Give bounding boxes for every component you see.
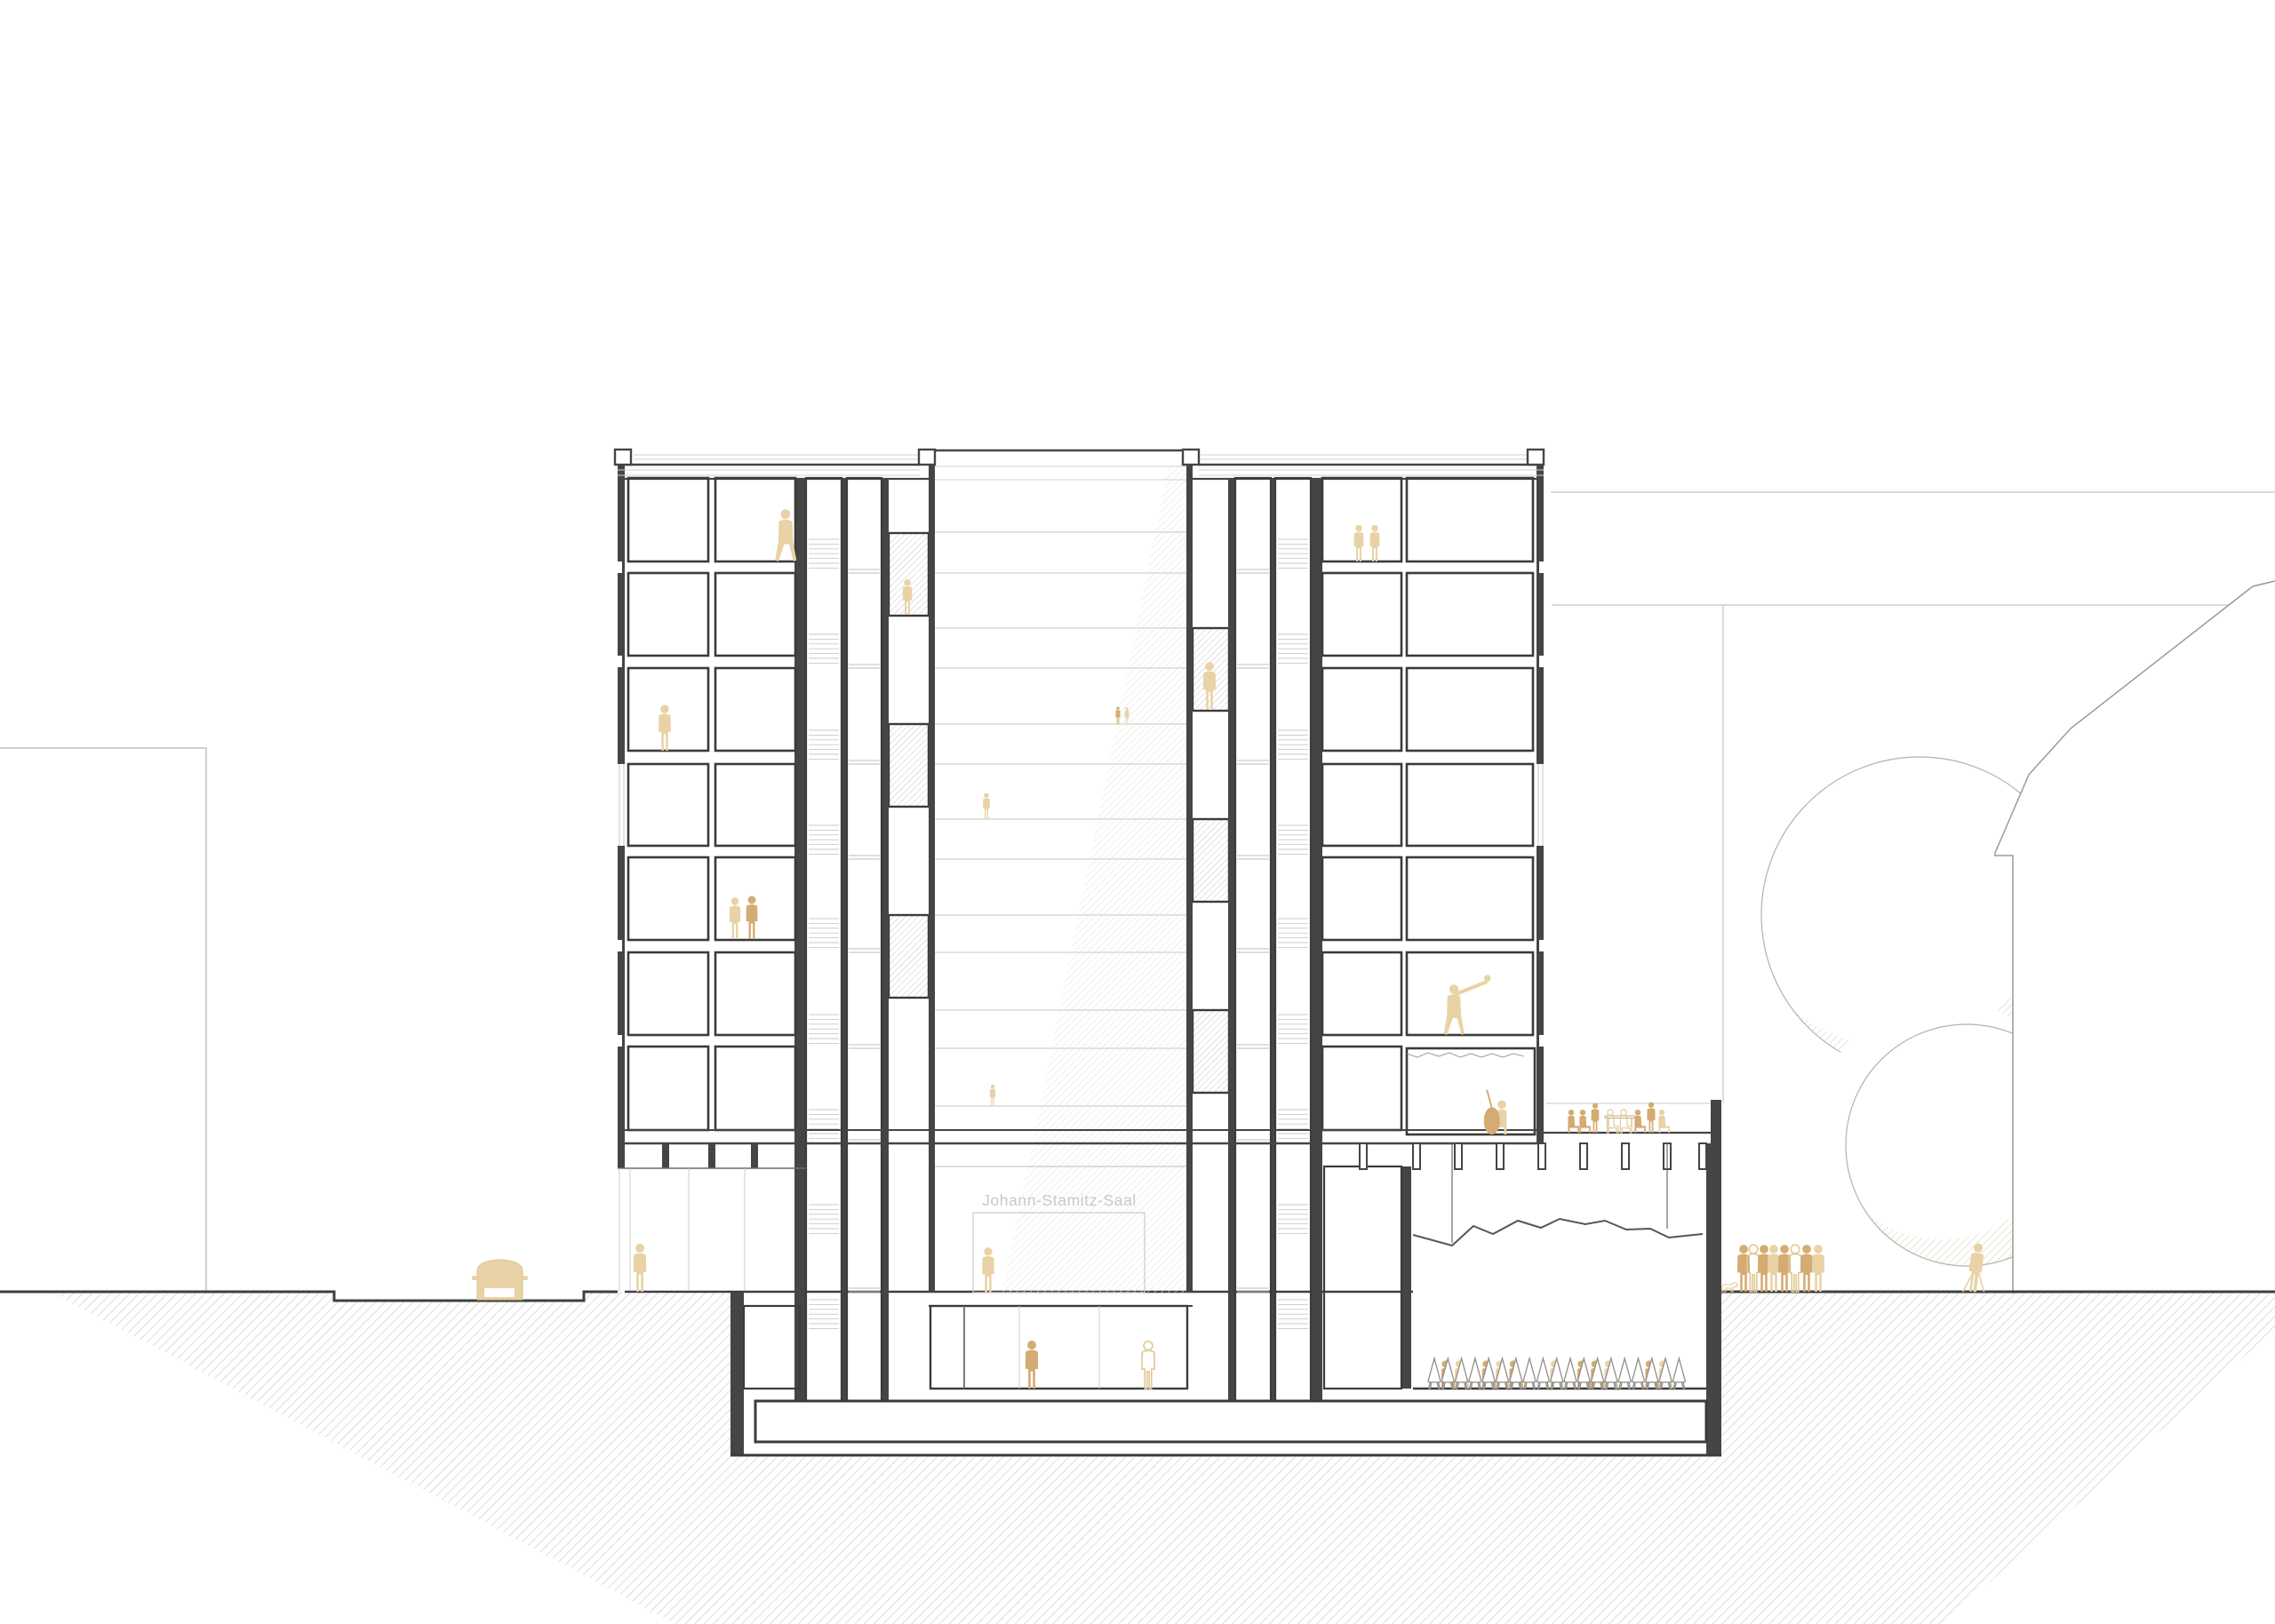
room	[715, 764, 795, 846]
acoustic-ceiling-zigzag	[1413, 1219, 1703, 1246]
ceiling-baffle	[1622, 1143, 1629, 1169]
ceiling-baffle	[1580, 1143, 1587, 1169]
room	[1322, 573, 1401, 656]
audience-chair	[1469, 1358, 1481, 1389]
landing-box	[1193, 1010, 1229, 1093]
ceiling-baffle	[1538, 1143, 1545, 1169]
person-upper-room-left-wing	[775, 509, 796, 561]
ceiling-baffle	[1455, 1143, 1462, 1169]
room	[628, 764, 708, 846]
terrace-person	[1634, 1110, 1646, 1133]
room	[628, 478, 708, 561]
landing-box	[889, 915, 929, 998]
colonnade-piers	[618, 1143, 758, 1168]
street-person	[1800, 1245, 1813, 1292]
terrace-person	[1647, 1103, 1655, 1133]
glazed-band-mullions	[619, 764, 1543, 846]
person-basement	[1026, 1341, 1038, 1389]
audience-chair	[1618, 1358, 1631, 1389]
terrace-person	[1620, 1110, 1632, 1133]
audience-chair	[1673, 1358, 1686, 1389]
room	[1322, 668, 1401, 751]
room	[628, 1047, 708, 1130]
car	[472, 1260, 528, 1300]
room	[628, 857, 708, 940]
person-room-left-wing	[730, 897, 740, 939]
room	[715, 573, 795, 656]
left-background-building	[0, 748, 206, 1292]
person-cellist	[1484, 1090, 1507, 1134]
room	[1407, 857, 1533, 940]
wall	[1311, 478, 1322, 1401]
room	[628, 952, 708, 1035]
room	[1407, 764, 1533, 846]
roof-parapets	[615, 450, 1544, 465]
person-basement	[1142, 1341, 1154, 1389]
audience-chair	[1632, 1358, 1645, 1389]
audience	[1428, 1358, 1685, 1389]
ceiling-baffles	[1413, 1143, 1706, 1169]
rehearsal-room-cello	[1407, 1048, 1535, 1134]
atrium-wall-left	[929, 465, 935, 1293]
concert-hall	[1324, 1053, 1711, 1389]
atrium-wall-right	[1186, 465, 1193, 1293]
rehearsal-room-trombone	[1407, 952, 1533, 1035]
person-room-left-wing	[659, 705, 671, 751]
audience-chair	[1428, 1358, 1441, 1389]
basement-wall-left	[730, 1293, 744, 1455]
wall	[1228, 478, 1235, 1401]
street-person	[1789, 1245, 1801, 1292]
right-background-building-fill	[1995, 581, 2275, 1294]
room	[1322, 857, 1401, 940]
ground	[0, 1292, 2275, 1624]
wall	[882, 478, 889, 1401]
curtain-wavy-line	[1407, 1053, 1524, 1057]
room	[715, 952, 795, 1035]
terrace-person	[1568, 1110, 1579, 1133]
street-person	[1768, 1245, 1780, 1292]
terrace-person	[1658, 1110, 1670, 1133]
light-beam-hatch	[1002, 466, 1186, 1293]
basement-corridor	[755, 1401, 1706, 1442]
room	[1322, 764, 1401, 846]
backstage-room	[1324, 1166, 1401, 1389]
street-person	[1737, 1245, 1750, 1292]
ground-hatch	[51, 1292, 2275, 1624]
person-room-left-wing	[746, 896, 758, 939]
person-saal-stage	[982, 1247, 994, 1293]
audience-chair	[1523, 1358, 1536, 1389]
person-room-right-wing	[1370, 525, 1380, 561]
room	[715, 668, 795, 751]
roof-terrace-group	[1568, 1103, 1670, 1133]
room	[1322, 952, 1401, 1035]
hall-wall-right	[1706, 1143, 1721, 1455]
person-room-right-wing	[1354, 525, 1364, 561]
ceiling-baffle	[1497, 1143, 1504, 1169]
person-lobby	[634, 1244, 646, 1292]
room	[628, 573, 708, 656]
hall-wall-left	[1401, 1166, 1411, 1389]
landing-box	[889, 724, 929, 807]
audience-chair	[1537, 1358, 1550, 1389]
ceiling-baffle	[1699, 1143, 1706, 1169]
person-atrium-gallery	[990, 1085, 995, 1106]
roof	[615, 450, 1544, 480]
hall-label: Johann-Stamitz-Saal	[982, 1191, 1137, 1209]
room	[1407, 478, 1533, 561]
room	[1407, 573, 1533, 656]
person-trombonist	[1444, 975, 1491, 1035]
audience-chair	[1564, 1358, 1577, 1389]
section-drawing: Johann-Stamitz-Saal	[0, 0, 2275, 1624]
room	[1407, 668, 1533, 751]
room	[715, 1047, 795, 1130]
dog	[1722, 1283, 1737, 1292]
landing-box	[1193, 819, 1229, 902]
street-person	[1812, 1245, 1824, 1292]
person-atrium-gallery	[983, 793, 990, 819]
terrace-person	[1592, 1103, 1600, 1133]
room	[1322, 478, 1401, 561]
atrium	[889, 466, 1229, 1293]
room	[1322, 1047, 1401, 1130]
ceiling-baffle	[1413, 1143, 1420, 1169]
terrace-parapet	[1711, 1100, 1721, 1144]
terrace-person	[1579, 1110, 1591, 1133]
